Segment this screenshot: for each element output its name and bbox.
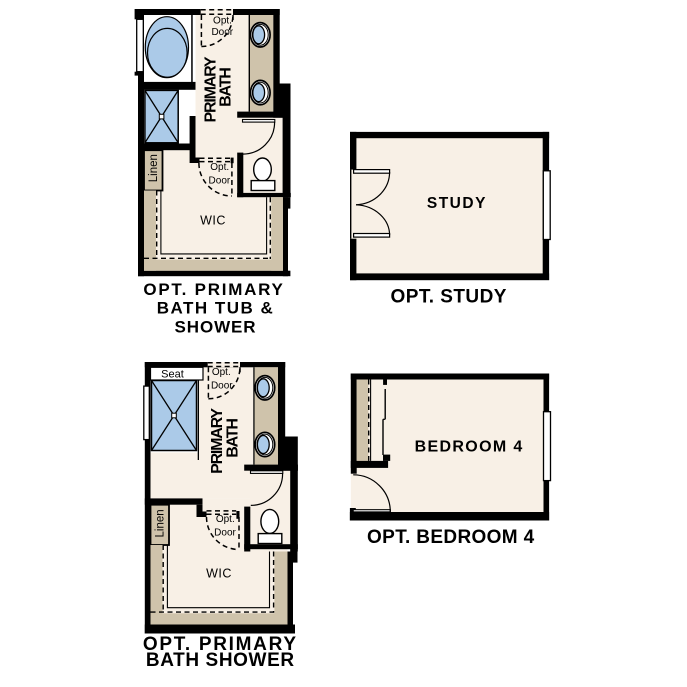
svg-text:Door: Door (211, 381, 233, 392)
svg-text:BATH: BATH (224, 419, 241, 458)
svg-text:Door: Door (211, 27, 233, 38)
svg-text:OPT. PRIMARY: OPT. PRIMARY (143, 280, 284, 299)
svg-text:STUDY: STUDY (427, 195, 487, 212)
svg-text:Opt.: Opt. (213, 15, 232, 26)
svg-text:Opt.: Opt. (210, 162, 229, 173)
svg-text:WIC: WIC (206, 567, 232, 581)
svg-text:Door: Door (209, 175, 231, 186)
svg-text:OPT. BEDROOM 4: OPT. BEDROOM 4 (367, 527, 535, 548)
svg-text:BATH SHOWER: BATH SHOWER (146, 650, 295, 671)
svg-text:SHOWER: SHOWER (175, 317, 257, 336)
svg-text:Linen: Linen (154, 509, 166, 537)
svg-text:Linen: Linen (148, 154, 160, 182)
svg-text:BEDROOM 4: BEDROOM 4 (415, 438, 524, 455)
svg-text:Door: Door (214, 527, 236, 538)
svg-text:Opt.: Opt. (216, 514, 235, 525)
svg-text:BATH TUB &: BATH TUB & (157, 299, 275, 318)
svg-text:Seat: Seat (161, 369, 184, 381)
svg-text:OPT. STUDY: OPT. STUDY (390, 287, 506, 308)
svg-text:WIC: WIC (200, 213, 226, 227)
svg-text:Opt.: Opt. (212, 367, 231, 378)
svg-text:BATH: BATH (218, 68, 235, 107)
